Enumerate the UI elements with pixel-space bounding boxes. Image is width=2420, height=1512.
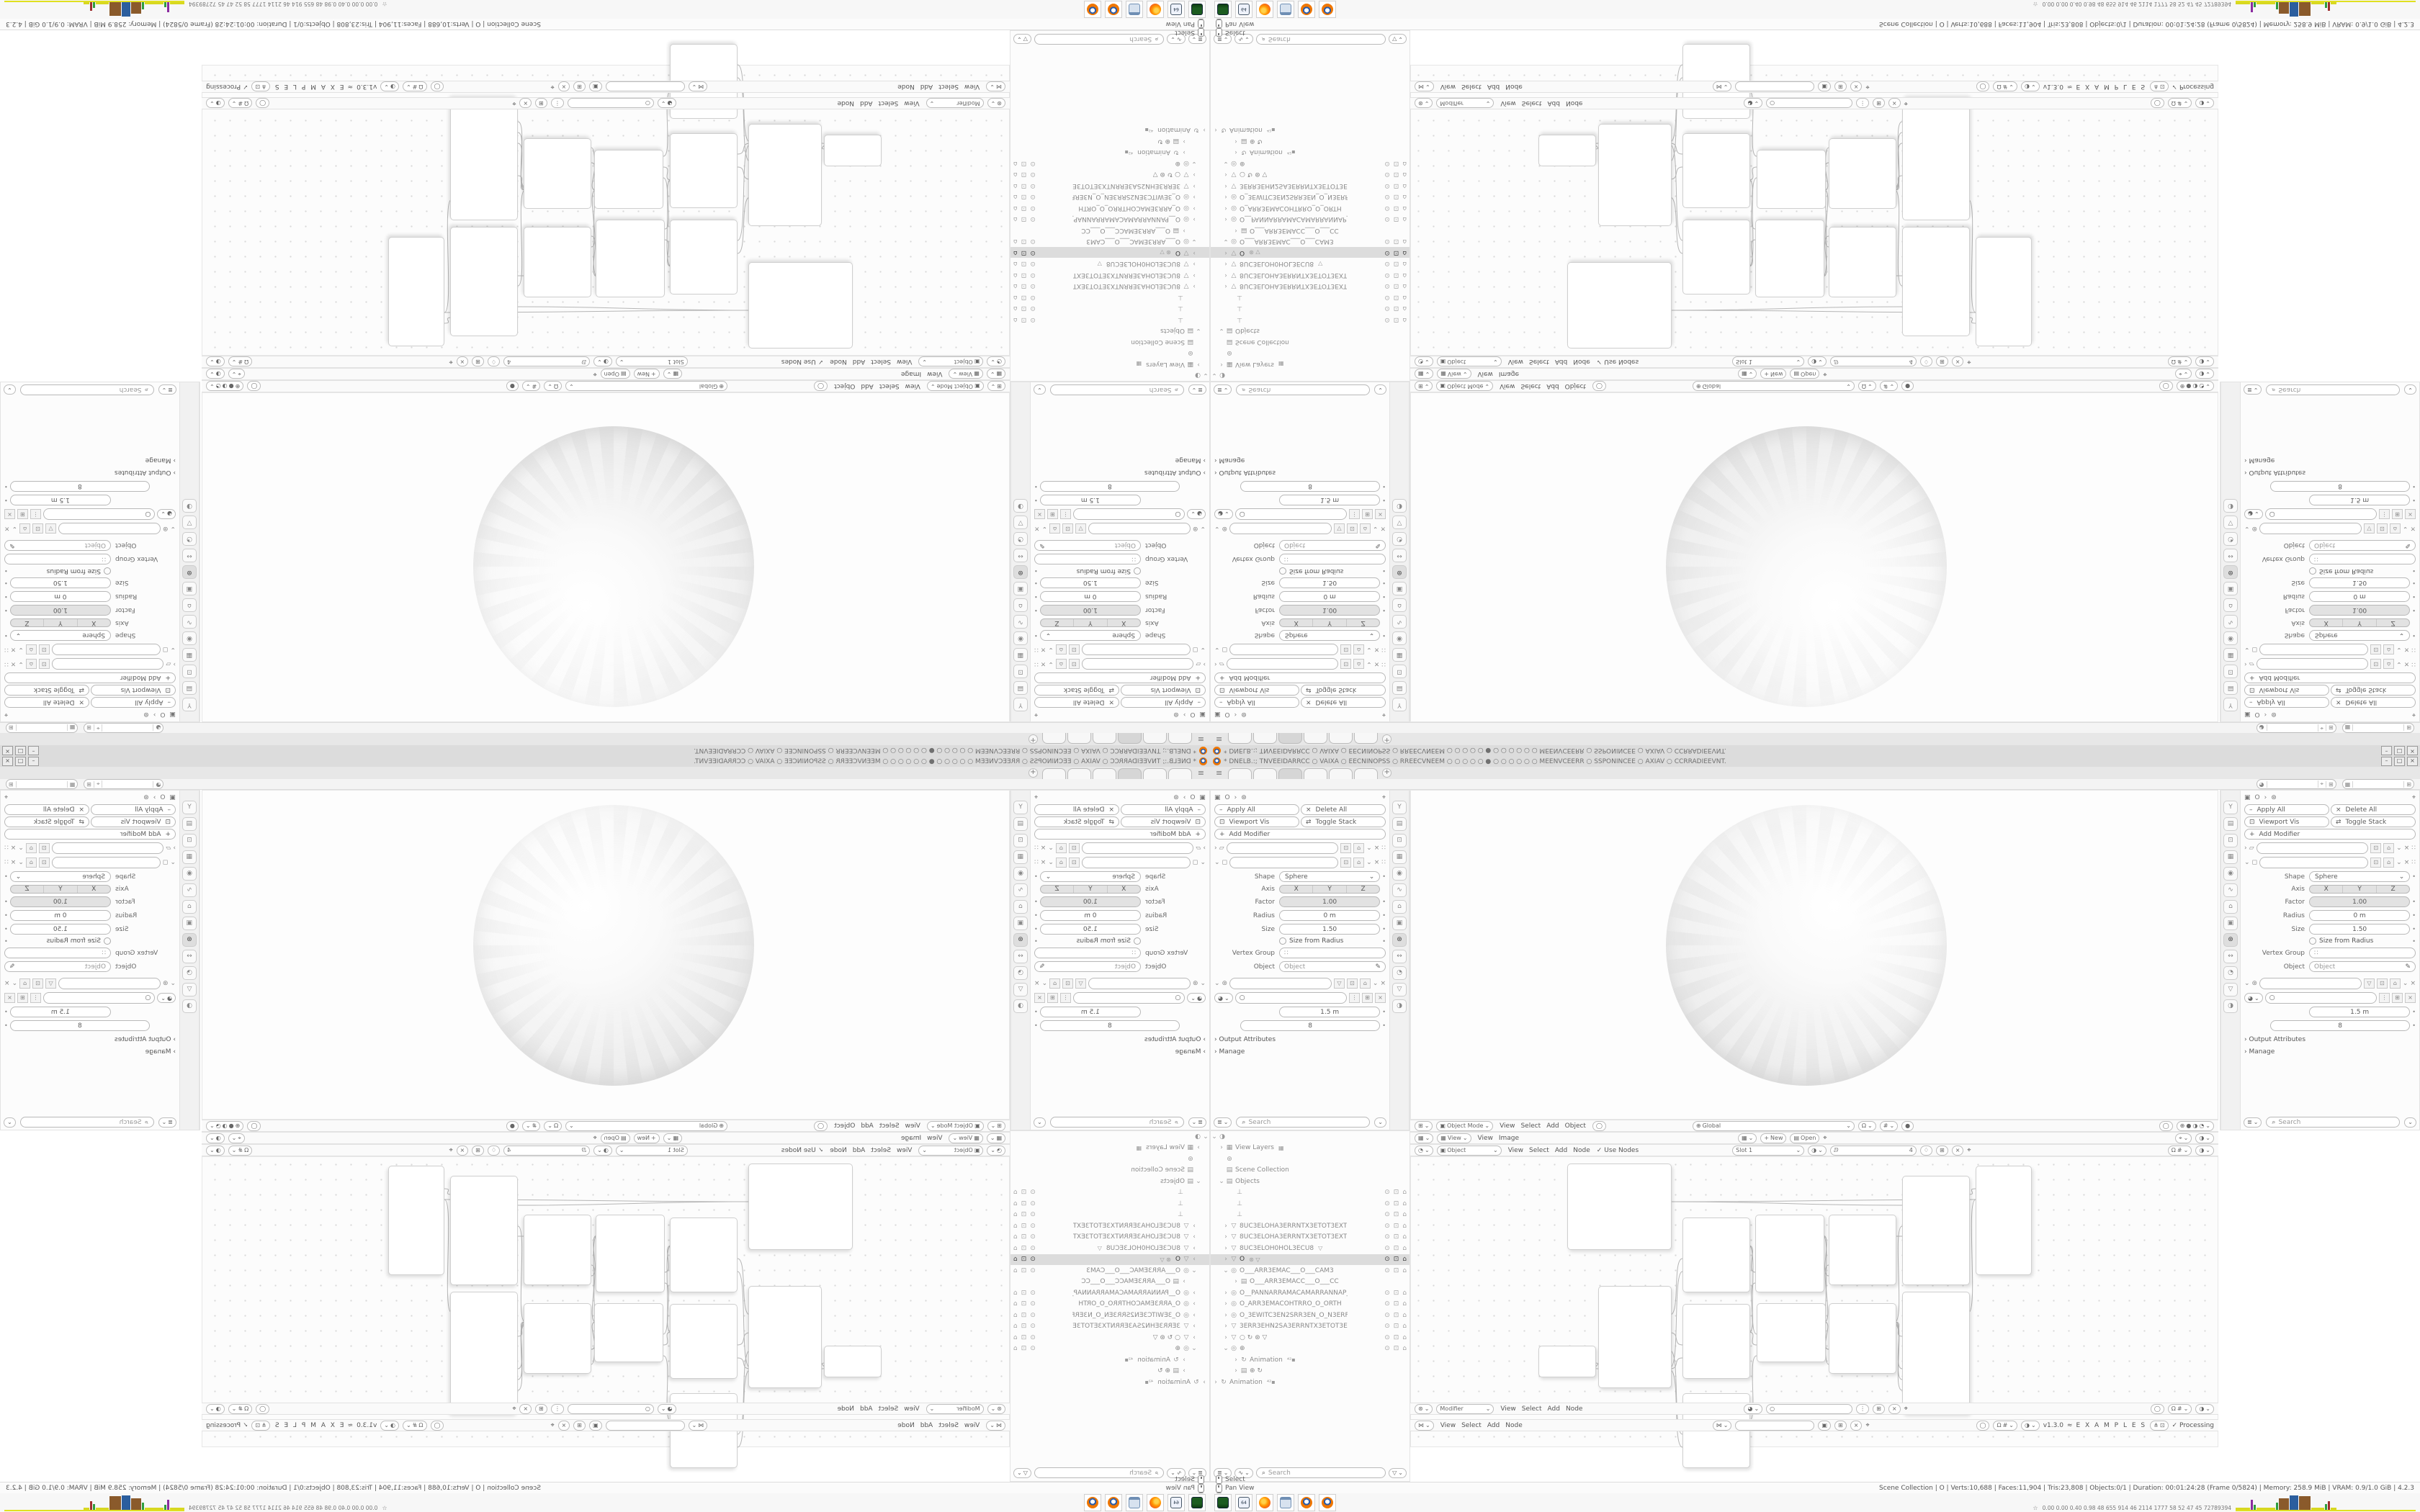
mode-dropdown[interactable]: ▣Object Mode⌄ <box>1436 1121 1493 1131</box>
render-disable-icon[interactable]: ⌂ <box>1013 305 1018 312</box>
properties-tab[interactable]: ▦ <box>182 648 197 662</box>
outliner-row[interactable]: ⌄ ◎ ⊕ ⊙⊡⌂ <box>1010 158 1209 169</box>
editor-type-dropdown[interactable]: ⋈⌄ <box>986 82 1005 92</box>
hide-icon[interactable]: ⊙ <box>1030 1267 1036 1274</box>
axis-toggle[interactable]: Z <box>1041 886 1073 893</box>
render-disable-icon[interactable]: ⌂ <box>1402 1245 1407 1252</box>
taskbar-app-button[interactable] <box>1084 1 1101 18</box>
copy-icon[interactable]: ⊞ <box>6 725 17 732</box>
properties-tab[interactable]: ◉ <box>182 867 197 881</box>
viewport-disable-icon[interactable]: ⊡ <box>1394 271 1399 279</box>
display-toggle-icon[interactable]: ⊡ <box>1069 858 1080 868</box>
properties-tab[interactable]: ▤ <box>2223 817 2238 831</box>
pin-icon[interactable]: ⌖ <box>550 1422 554 1429</box>
viewport-disable-icon[interactable]: ⊡ <box>1394 316 1399 323</box>
viewport-disable-icon[interactable]: ⊡ <box>1021 1200 1027 1207</box>
window-button[interactable]: × <box>2407 746 2418 755</box>
properties-tab[interactable]: ⊛ <box>182 565 197 579</box>
factor-slider[interactable]: 1.00 <box>1279 605 1380 616</box>
viewport-disable-icon[interactable]: ⊡ <box>1394 193 1399 200</box>
gizmo-button[interactable]: ⌖⌄ <box>2175 369 2192 379</box>
object-field[interactable]: Object✎ <box>1279 961 1386 972</box>
ring-button[interactable]: ◯ <box>1976 82 1990 92</box>
outliner-row[interactable]: › ◎ O_ARR3EMACOHTRRO_O_ORTH ⊙⊡⌂ <box>1010 202 1209 214</box>
hide-icon[interactable]: ⊙ <box>1030 193 1036 200</box>
editor-type-dropdown[interactable]: ▦⌄ <box>987 369 1005 379</box>
outliner-row[interactable]: › ↻ Animation ⁴²▪ ⊙⊡⌂ <box>1211 1377 1410 1388</box>
view-object-types-button[interactable]: ◯ <box>247 1121 261 1131</box>
render-disable-icon[interactable]: ⌂ <box>1402 271 1407 279</box>
properties-tab[interactable]: ▦ <box>1013 850 1028 864</box>
viewport-vis-button[interactable]: ⊡Viewport Vis <box>1214 685 1299 696</box>
menu-item[interactable]: View <box>1497 1405 1518 1413</box>
graph-node[interactable] <box>450 1292 518 1414</box>
properties-tab[interactable]: ∿ <box>1013 615 1028 629</box>
menu-item[interactable]: View <box>962 1422 982 1429</box>
new-tab-button[interactable]: + <box>1382 734 1391 744</box>
browser-tab[interactable] <box>1228 733 1252 744</box>
outliner-row[interactable]: ⌄ ◎ O___ARR3EMAC___O___CAM3 ⊙⊡⌂ <box>1010 236 1209 248</box>
properties-tab[interactable]: ⊛ <box>1392 565 1407 579</box>
image-view-dropdown[interactable]: ▦View⌄ <box>1437 369 1471 379</box>
properties-tab[interactable]: ∿ <box>2223 615 2238 629</box>
browser-tab[interactable] <box>1143 768 1167 779</box>
shading-mode-switch[interactable]: ⊕●◑◔⌄ <box>206 382 243 392</box>
editor-type-dropdown[interactable]: ▦⌄ <box>1415 369 1433 379</box>
viewport-disable-icon[interactable]: ⊡ <box>1021 1312 1027 1319</box>
outliner-row[interactable]: › ◎ O_ARR3EMACOHTRRO_O_ORTH ⊙⊡⌂ <box>1211 1299 1410 1310</box>
properties-search-input[interactable]: ⌕Search <box>2266 1117 2400 1128</box>
properties-tab[interactable]: ⊛ <box>1013 565 1028 579</box>
properties-search-input[interactable]: ⌕Search <box>1050 1117 1184 1128</box>
gizmo-button[interactable]: ⌖⌄ <box>228 1133 245 1143</box>
hide-icon[interactable]: ⊙ <box>1384 260 1390 267</box>
outliner-row[interactable]: ⊥ ⊙⊡⌂ <box>1010 303 1209 315</box>
pin-icon[interactable]: ⌖ <box>4 794 8 801</box>
overlay-button[interactable]: ◑⌄ <box>2195 99 2214 109</box>
geo-count-field[interactable]: 8 <box>1240 1020 1380 1031</box>
menu-item[interactable]: View <box>924 371 945 378</box>
overlay-button[interactable]: ◑⌄ <box>2195 1133 2214 1143</box>
outliner-row[interactable]: ⊚ ⊙⊡⌂ <box>1211 1153 1410 1165</box>
viewport-disable-icon[interactable]: ⊡ <box>1394 305 1399 312</box>
pin-icon[interactable]: ⌖ <box>2318 724 2326 732</box>
display-toggle-icon[interactable]: ⊡ <box>1340 843 1351 853</box>
toggle-stack-button[interactable]: ⇄Toggle Stack <box>4 685 89 696</box>
pin-icon[interactable]: ⌖ <box>1967 359 1971 366</box>
shape-dropdown[interactable]: Sphere⌄ <box>2309 871 2410 882</box>
mode-dropdown[interactable]: ▣Object Mode⌄ <box>927 382 984 392</box>
menu-item[interactable]: View <box>901 1405 922 1413</box>
hide-icon[interactable]: ⊙ <box>1384 1312 1390 1319</box>
viewport-disable-icon[interactable]: ⊡ <box>1021 1267 1027 1274</box>
render-disable-icon[interactable]: ⌂ <box>1013 294 1018 301</box>
use-nodes-checkbox[interactable]: ✓Use Nodes <box>1597 1147 1639 1154</box>
image-selector[interactable]: ▦⌄ <box>1738 1133 1757 1143</box>
render-disable-icon[interactable]: ⌂ <box>1402 193 1407 200</box>
graph-node[interactable] <box>1976 237 2032 346</box>
outliner-row[interactable]: ▤ Scene Collection ⊙⊡⌂ <box>1211 1165 1410 1176</box>
vertex-group-field[interactable]: ∷ <box>2309 554 2416 564</box>
hide-icon[interactable]: ⊙ <box>1384 305 1390 312</box>
editor-type-dropdown[interactable]: ▦⌄ <box>987 1133 1005 1143</box>
outliner-row[interactable]: ⌄ ◎ O___ARR3EMAC___O___CAM3 ⊙⊡⌂ <box>1010 1265 1209 1277</box>
menu-item[interactable]: Add <box>850 359 868 366</box>
menu-item[interactable]: Add <box>1552 359 1570 366</box>
close-button[interactable]: × <box>558 82 570 92</box>
view-object-types-button[interactable]: ◯ <box>2159 1121 2173 1131</box>
graph-node[interactable] <box>1682 220 1750 294</box>
geo-size-field[interactable]: 1.5 m <box>1040 1007 1141 1017</box>
viewport-disable-icon[interactable]: ⊡ <box>1021 215 1027 222</box>
axis-toggle[interactable]: Z <box>11 886 43 893</box>
graph-node[interactable] <box>1755 220 1824 297</box>
outliner-row[interactable]: › ↻ Animation ⁴²▪ ⊙⊡⌂ <box>1010 125 1209 136</box>
shader-type-dropdown[interactable]: ▣Object⌄ <box>918 1146 983 1156</box>
snap-button[interactable]: Ω#⌄ <box>403 82 427 92</box>
output-attributes-section[interactable]: › Output Attributes <box>1034 469 1206 476</box>
node-group-selector[interactable]: ◕⌄○⋮⊞× <box>1214 508 1386 520</box>
properties-tab[interactable]: Y <box>2223 698 2238 711</box>
toolbar-field-2[interactable]: ▦⊞ <box>2342 779 2414 789</box>
add-modifier-button[interactable]: +Add Modifier <box>1034 672 1206 683</box>
snap-settings[interactable]: #⌄ <box>522 1121 540 1131</box>
radius-field[interactable]: 0 m <box>2309 591 2410 602</box>
manage-section[interactable]: › Manage <box>4 456 176 464</box>
browser-tab[interactable] <box>1168 768 1192 779</box>
shading-mode-switch[interactable]: ⊕●◑◔⌄ <box>206 1121 243 1131</box>
modifier-slot[interactable]: ⌄◻⊡⌂⌄×∷ <box>2244 857 2416 868</box>
pin-icon[interactable]: ⌖ <box>94 780 103 788</box>
render-disable-icon[interactable]: ⌂ <box>1402 1256 1407 1263</box>
render-disable-icon[interactable]: ⌂ <box>1402 160 1407 167</box>
render-disable-icon[interactable]: ⌂ <box>1402 204 1407 212</box>
delete-all-button[interactable]: ×Delete All <box>1034 804 1119 815</box>
viewport-3d[interactable] <box>202 790 1010 1120</box>
vertex-group-field[interactable]: ∷ <box>4 554 111 564</box>
render-disable-icon[interactable]: ⌂ <box>1013 316 1018 323</box>
toggle-stack-button[interactable]: ⇄Toggle Stack <box>2331 816 2416 827</box>
properties-tab[interactable]: ↔ <box>1392 950 1407 963</box>
browser-tab[interactable] <box>1253 768 1277 779</box>
properties-tab[interactable]: ◑ <box>1013 499 1028 513</box>
tool-selector[interactable]: ⋈⌄ <box>1713 82 1732 92</box>
graph-node[interactable] <box>450 98 518 220</box>
display-toggle-icon[interactable]: ⊡ <box>1069 644 1080 654</box>
add-modifier-button[interactable]: +Add Modifier <box>1214 672 1386 683</box>
output-attributes-section[interactable]: › Output Attributes <box>2244 1036 2416 1043</box>
node-group-selector[interactable]: ◕⌄○⋮⊞× <box>2244 508 2416 520</box>
pin-icon[interactable]: ⌖ <box>512 100 516 107</box>
hide-icon[interactable]: ⊙ <box>1030 1345 1036 1352</box>
graph-node[interactable] <box>450 1176 518 1285</box>
viewport-disable-icon[interactable]: ⊡ <box>1394 1323 1399 1330</box>
render-toggle-icon[interactable]: ⌂ <box>1056 858 1067 868</box>
image-view-dropdown[interactable]: ▦View⌄ <box>949 1133 982 1143</box>
new-image-button[interactable]: +New <box>1760 1133 1786 1143</box>
window-button[interactable]: □ <box>15 757 26 766</box>
outliner-row[interactable]: › ▦ View Layers ▦ ⊙⊡⌂ <box>1010 1143 1209 1154</box>
size-from-radius-checkbox[interactable] <box>104 937 111 945</box>
hide-icon[interactable]: ⊙ <box>1030 249 1036 256</box>
material-icon-button[interactable]: ◑⌄ <box>1808 1146 1827 1156</box>
size-field[interactable]: 1.50 <box>10 924 111 935</box>
taskbar-app-button[interactable] <box>1256 1494 1273 1511</box>
render-disable-icon[interactable]: ⌂ <box>1013 1223 1018 1230</box>
hide-icon[interactable]: ⊙ <box>1030 1233 1036 1241</box>
add-modifier-button[interactable]: +Add Modifier <box>1034 829 1206 840</box>
object-field[interactable]: Object✎ <box>2309 961 2416 972</box>
editor-type-dropdown[interactable]: ⊞⌄ <box>987 1121 1005 1131</box>
axis-toggle[interactable]: X <box>1280 619 1313 626</box>
properties-tab[interactable]: ⊡ <box>2223 665 2238 678</box>
viewport-disable-icon[interactable]: ⊡ <box>1021 1233 1027 1241</box>
outliner-row[interactable]: › ▤ O___ARR3EMACC___O___CC ⊙⊡⌂ <box>1211 1277 1410 1288</box>
properties-tab[interactable]: ⊡ <box>1013 834 1028 847</box>
options-button[interactable]: ⌄ <box>1374 1117 1386 1128</box>
viewport-vis-button[interactable]: ⊡Viewport Vis <box>2244 816 2329 827</box>
outliner-row[interactable]: ⌄ ◑ ⊙⊡⌂ <box>1211 370 1410 382</box>
size-field[interactable]: 1.50 <box>2309 577 2410 588</box>
browser-tab[interactable] <box>1118 768 1142 779</box>
outliner-row[interactable]: ⌄ ▤ Objects ⊙⊡⌂ <box>1010 1176 1209 1187</box>
axis-toggle[interactable]: X <box>1107 619 1140 626</box>
vertex-group-field[interactable]: ∷ <box>1279 948 1386 958</box>
outliner-row[interactable]: › ◎ O_ARR3EMACOHTRRO_O_ORTH ⊙⊡⌂ <box>1211 202 1410 214</box>
snap-button[interactable]: Ω#⌄ <box>2168 357 2192 367</box>
overlay-button[interactable]: ◑⌄ <box>206 369 225 379</box>
menu-item[interactable]: Add <box>1543 383 1561 390</box>
copy-icon[interactable]: ⊞ <box>2326 781 2336 788</box>
outliner-row[interactable]: › ▤ ⊕ ↻ ⊙⊡⌂ <box>1211 1366 1410 1377</box>
snap-button[interactable]: Ω#⌄ <box>2168 1146 2192 1156</box>
browser-tab[interactable] <box>1304 768 1327 779</box>
viewport-disable-icon[interactable]: ⊡ <box>1394 249 1399 256</box>
editor-type-dropdown[interactable]: ◔⌄ <box>987 1146 1005 1156</box>
browser-tab[interactable] <box>1354 768 1378 779</box>
render-disable-icon[interactable]: ⌂ <box>1013 282 1018 289</box>
geo-count-field[interactable]: 8 <box>1040 481 1180 492</box>
options-button[interactable]: ⌄ <box>1034 385 1046 395</box>
outliner-row[interactable]: ⊥ ⊙⊡⌂ <box>1211 314 1410 325</box>
overlay-button[interactable]: ◑⌄ <box>380 82 399 92</box>
outliner-row[interactable]: ⊥ ⊙⊡⌂ <box>1010 314 1209 325</box>
properties-tab[interactable]: ▦ <box>2223 648 2238 662</box>
render-toggle-icon[interactable]: ⌂ <box>1353 659 1364 669</box>
menu-item[interactable]: View <box>1475 1135 1496 1142</box>
browser-tab[interactable] <box>1093 733 1116 744</box>
properties-tab[interactable]: ▤ <box>1392 681 1407 695</box>
image-view-dropdown[interactable]: ▦View⌄ <box>1437 1133 1471 1143</box>
snap-toggle[interactable]: Ω⌄ <box>544 382 562 392</box>
modifier-slot[interactable]: ›▱⊡⌂⌄×∷ <box>1214 842 1386 854</box>
browser-tab[interactable] <box>1118 733 1142 744</box>
window-titlebar[interactable]: * DNELB.:; TNVEEIDARRCC ○ VAIXA ○ EECNIN… <box>1210 744 2420 756</box>
viewport-vis-button[interactable]: ⊡Viewport Vis <box>1214 816 1299 827</box>
graph-node[interactable] <box>824 135 882 166</box>
outliner-row[interactable]: › ▤ ⊕ ↻ ⊙⊡⌂ <box>1211 135 1410 147</box>
viewport-disable-icon[interactable]: ⊡ <box>1021 1300 1027 1308</box>
properties-tab[interactable]: Y <box>1392 801 1407 814</box>
toolbar-field-2[interactable]: ▦⊞ <box>2342 723 2414 733</box>
graph-node[interactable] <box>524 138 591 209</box>
geometry-nodes-modifier[interactable]: ⌄⊛▽⊡⌂⌄× <box>1214 978 1386 989</box>
render-disable-icon[interactable]: ⌂ <box>1402 294 1407 301</box>
radius-field[interactable]: 0 m <box>1040 591 1141 602</box>
hide-icon[interactable]: ⊙ <box>1384 182 1390 189</box>
new-image-button[interactable]: +New <box>634 369 660 379</box>
properties-tab[interactable]: ⊡ <box>2223 834 2238 847</box>
vertex-group-field[interactable]: ∷ <box>1034 554 1141 564</box>
properties-tab[interactable]: ∿ <box>1013 883 1028 897</box>
viewport-disable-icon[interactable]: ⊡ <box>1394 1189 1399 1196</box>
outliner-row[interactable]: › ▤ ⊕ ↻ ⊙⊡⌂ <box>1010 1366 1209 1377</box>
taskbar-app-button[interactable] <box>1277 1 1294 18</box>
properties-tab[interactable]: ▤ <box>2223 681 2238 695</box>
toggle-stack-button[interactable]: ⇄Toggle Stack <box>2331 685 2416 696</box>
window-titlebar[interactable]: * DNELB.:; TNVEEIDARRCC ○ VAIXA ○ EECNIN… <box>0 756 1210 768</box>
outliner-row[interactable]: ▤ Scene Collection ⊙⊡⌂ <box>1211 336 1410 348</box>
render-disable-icon[interactable]: ⌂ <box>1402 1345 1407 1352</box>
apply-all-button[interactable]: –Apply All <box>1214 804 1299 815</box>
properties-tab[interactable]: ▣ <box>1013 917 1028 930</box>
properties-search-input[interactable]: ⌕Search <box>20 384 154 395</box>
properties-tab[interactable]: ↔ <box>2223 549 2238 562</box>
properties-tab[interactable]: ▣ <box>2223 917 2238 930</box>
hide-icon[interactable]: ⊙ <box>1384 204 1390 212</box>
size-from-radius-checkbox[interactable] <box>1279 567 1286 575</box>
radius-field[interactable]: 0 m <box>1279 910 1380 921</box>
render-disable-icon[interactable]: ⌂ <box>1402 1233 1407 1241</box>
menu-item[interactable]: Add <box>858 1122 876 1130</box>
vertex-group-field[interactable]: ∷ <box>1279 554 1386 564</box>
properties-tab[interactable]: ◔ <box>2223 532 2238 546</box>
properties-tab[interactable]: ◑ <box>2223 999 2238 1013</box>
viewport-disable-icon[interactable]: ⊡ <box>1021 160 1027 167</box>
copy-button[interactable]: ⊞ <box>472 1146 484 1156</box>
outliner-row[interactable]: › ↻ Animation ⁴²▪ ⊙⊡⌂ <box>1010 1354 1209 1366</box>
properties-tab[interactable]: ◑ <box>2223 499 2238 513</box>
factor-slider[interactable]: 1.00 <box>1040 605 1141 616</box>
graph-node[interactable] <box>594 1303 663 1362</box>
menu-item[interactable]: Select <box>868 359 894 366</box>
window-button[interactable]: – <box>28 757 39 766</box>
axis-toggle[interactable]: Z <box>1347 886 1379 893</box>
menu-item[interactable]: Select <box>1458 84 1484 91</box>
snap-settings[interactable]: #⌄ <box>1880 1121 1898 1131</box>
properties-tab[interactable]: ↔ <box>182 950 197 963</box>
render-disable-icon[interactable]: ⌂ <box>1013 1334 1018 1341</box>
viewport-disable-icon[interactable]: ⊡ <box>1021 282 1027 289</box>
menu-icon[interactable]: ≡ <box>1198 734 1204 744</box>
viewport-disable-icon[interactable]: ⊡ <box>1394 1300 1399 1308</box>
axis-toggle[interactable]: Z <box>2377 886 2409 893</box>
add-modifier-button[interactable]: +Add Modifier <box>2244 672 2416 683</box>
snap-button[interactable]: Ω#⌄ <box>228 1146 253 1156</box>
transform-orientation-dropdown[interactable]: ⊕Global⌄ <box>1693 382 1855 392</box>
add-modifier-button[interactable]: +Add Modifier <box>1214 829 1386 840</box>
funnel-button[interactable]: ▽⌄ <box>1013 1468 1031 1478</box>
hide-icon[interactable]: ⊙ <box>1030 1245 1036 1252</box>
editor-type-dropdown[interactable]: ◔⌄ <box>987 357 1005 367</box>
manage-section[interactable]: › Manage <box>1214 456 1386 464</box>
properties-tab[interactable]: Y <box>1013 698 1028 711</box>
graph-node[interactable] <box>1682 133 1750 208</box>
outliner-row[interactable]: › ◎ O_ARR3EMACOHTRRO_O_ORTH ⊙⊡⌂ <box>1010 1299 1209 1310</box>
properties-tab[interactable]: ▤ <box>182 681 197 695</box>
graph-node[interactable] <box>748 1286 822 1388</box>
properties-tab[interactable]: ▽ <box>1013 516 1028 529</box>
graph-node[interactable] <box>824 1346 882 1377</box>
editor-type-dropdown[interactable]: ▦⌄ <box>1415 1133 1433 1143</box>
snap-toggle[interactable]: Ω⌄ <box>1858 1121 1876 1131</box>
viewport-vis-button[interactable]: ⊡Viewport Vis <box>2244 685 2329 696</box>
editor-type-button[interactable]: ≣⌄ <box>158 1117 176 1128</box>
graph-node[interactable] <box>1567 262 1672 348</box>
geo-count-field[interactable]: 8 <box>2270 1020 2410 1031</box>
toolbar-field-1[interactable]: ◕⌖⊞ <box>84 723 163 733</box>
vertex-group-field[interactable]: ∷ <box>1034 948 1141 958</box>
shader-type-dropdown[interactable]: ▣Object⌄ <box>1437 1146 1502 1156</box>
toggle-stack-button[interactable]: ⇄Toggle Stack <box>4 816 89 827</box>
snap-button[interactable]: Ω#⌄ <box>403 1421 427 1431</box>
viewport-disable-icon[interactable]: ⊡ <box>1394 238 1399 245</box>
menu-item[interactable]: View <box>1438 84 1458 91</box>
bars-button[interactable]: ⋮ <box>1856 99 1869 109</box>
properties-tab[interactable]: ◉ <box>2223 631 2238 645</box>
properties-tab[interactable]: ⌂ <box>2223 598 2238 612</box>
render-disable-icon[interactable]: ⌂ <box>1013 271 1018 279</box>
copy-button[interactable]: ⊞ <box>535 99 547 109</box>
editor-type-dropdown[interactable]: ◔⌄ <box>1415 357 1433 367</box>
fractal-sphere-object[interactable] <box>1666 805 1947 1086</box>
ring-button[interactable]: ◯ <box>431 1421 444 1431</box>
properties-tab[interactable]: ▣ <box>182 582 197 595</box>
viewport-vis-button[interactable]: ⊡Viewport Vis <box>91 685 176 696</box>
modifier-slot[interactable]: ⌄◻⊡⌂⌄×∷ <box>4 857 176 868</box>
geo-size-field[interactable]: 1.5 m <box>10 495 111 505</box>
render-disable-icon[interactable]: ⌂ <box>1013 204 1018 212</box>
object-field[interactable]: Object✎ <box>2309 540 2416 551</box>
modifier-dropdown[interactable]: Modifier⌄ <box>1436 99 1494 109</box>
tool-selector[interactable]: ⋈⌄ <box>1713 1421 1732 1431</box>
mode-dropdown[interactable]: ▣Object Mode⌄ <box>927 1121 984 1131</box>
properties-tab[interactable]: ◑ <box>182 999 197 1013</box>
properties-tab[interactable]: ⌂ <box>182 598 197 612</box>
properties-tab[interactable]: ⊛ <box>1392 933 1407 947</box>
geometry-nodes-modifier[interactable]: ⌄⊛▽⊡⌂⌄× <box>2244 978 2416 989</box>
menu-item[interactable]: View <box>902 383 923 390</box>
close-button[interactable]: × <box>1888 1404 1901 1414</box>
properties-tab[interactable]: ▦ <box>182 850 197 864</box>
apply-all-button[interactable]: –Apply All <box>2244 697 2329 708</box>
properties-tab[interactable]: ◔ <box>182 532 197 546</box>
radius-field[interactable]: 0 m <box>1040 910 1141 921</box>
close-button[interactable]: × <box>558 1421 570 1431</box>
axis-toggle[interactable]: Y <box>43 886 76 893</box>
menu-item[interactable]: Node <box>835 100 858 107</box>
menu-item[interactable]: Node <box>1502 84 1525 91</box>
menu-item[interactable]: View <box>1475 371 1496 378</box>
menu-item[interactable]: Add <box>1545 1405 1563 1413</box>
graph-node[interactable] <box>1829 138 1896 209</box>
graph-node[interactable] <box>748 262 853 348</box>
outliner-row[interactable]: ⌄ ▤ Objects ⊙⊡⌂ <box>1211 1176 1410 1187</box>
outliner-row[interactable]: › ▽ ○ ↻ ⊛ ▽ ⊙⊡⌂ <box>1211 1332 1410 1344</box>
open-image-button[interactable]: ▤Open <box>1790 369 1819 379</box>
properties-tab[interactable]: Y <box>2223 801 2238 814</box>
manage-section[interactable]: › Manage <box>4 1048 176 1056</box>
